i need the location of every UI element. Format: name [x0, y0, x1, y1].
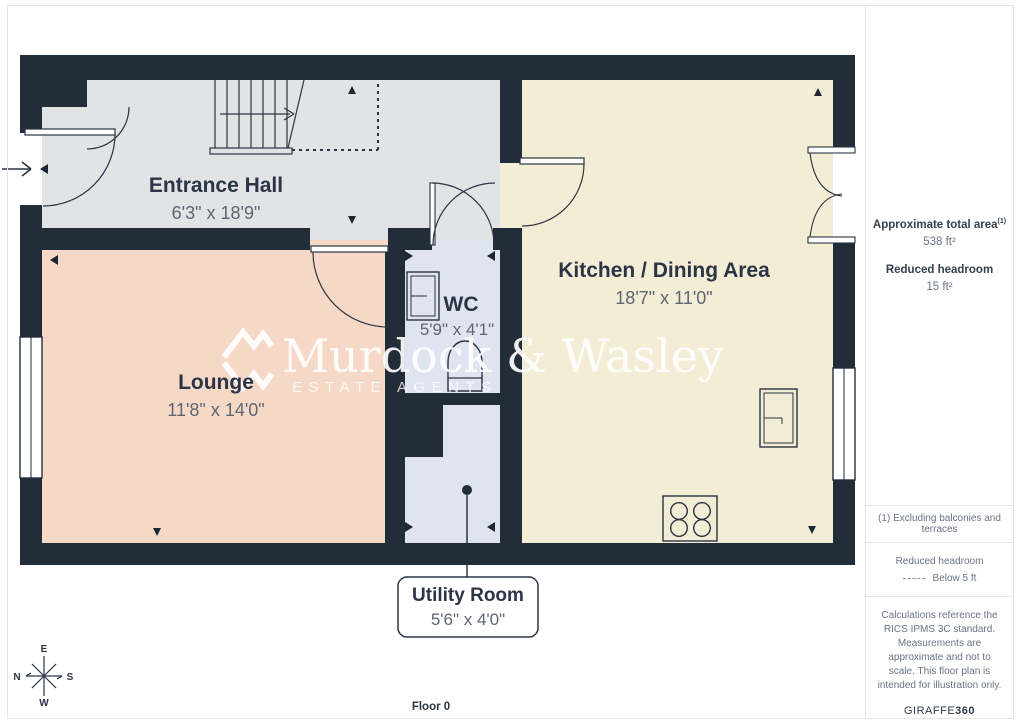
- compass-w: W: [39, 698, 49, 709]
- compass-icon: E N S W: [13, 644, 73, 709]
- reduced-headroom-label: Reduced headroom: [866, 264, 1013, 276]
- wc-name: WC: [444, 293, 479, 316]
- compass-n: N: [13, 672, 20, 683]
- floorplan-canvas: Murdock & Wasley ESTATE AGENTS Entrance …: [0, 0, 866, 724]
- kitchen-window: [833, 368, 855, 480]
- lounge-name: Lounge: [178, 371, 254, 394]
- area-summary: Approximate total area(1) 538 ft² Reduce…: [866, 6, 1013, 505]
- kitchen-name: Kitchen / Dining Area: [558, 259, 770, 282]
- compass-s: S: [67, 672, 74, 683]
- total-area-footnote-marker: (1): [998, 218, 1007, 225]
- compass-e: E: [41, 644, 48, 655]
- headroom-legend: Reduced headroom Below 5 ft: [866, 542, 1013, 596]
- room-floors: [42, 80, 833, 543]
- legend-value: Below 5 ft: [933, 573, 977, 584]
- watermark-name: Murdock & Wasley: [282, 329, 724, 383]
- reduced-headroom-value: 15 ft²: [866, 281, 1013, 293]
- legend-title: Reduced headroom: [896, 556, 984, 567]
- disclaimer-text: Calculations reference the RICS IPMS 3C …: [876, 609, 1003, 693]
- utility-name: Utility Room: [412, 585, 524, 606]
- floorplan-page: Murdock & Wasley ESTATE AGENTS Entrance …: [0, 0, 1024, 724]
- entrance-hall-name: Entrance Hall: [149, 174, 283, 197]
- info-sidebar: Approximate total area(1) 538 ft² Reduce…: [866, 6, 1013, 717]
- total-area-label: Approximate total area(1): [866, 218, 1013, 231]
- lounge-dims: 11'8" x 14'0": [167, 400, 264, 420]
- wc-dims: 5'9" x 4'1": [420, 320, 494, 339]
- disclaimer-section: Calculations reference the RICS IPMS 3C …: [866, 596, 1013, 717]
- entrance-hall-dims: 6'3" x 18'9": [172, 203, 261, 223]
- footnote-1: (1) Excluding balconies and terraces: [866, 505, 1013, 542]
- watermark-subtitle: ESTATE AGENTS: [292, 379, 498, 396]
- kitchen-dims: 18'7" x 11'0": [615, 288, 712, 308]
- dashed-line-icon: [903, 578, 925, 579]
- lounge-window: [20, 337, 42, 478]
- floor-label: Floor 0: [412, 701, 450, 713]
- legend-row: Below 5 ft: [903, 573, 977, 584]
- kitchen-floor: [500, 80, 833, 543]
- brand-logo: GIRAFFE360: [876, 705, 1003, 717]
- utility-dims: 5'6" x 4'0": [431, 610, 505, 629]
- total-area-value: 538 ft²: [866, 236, 1013, 248]
